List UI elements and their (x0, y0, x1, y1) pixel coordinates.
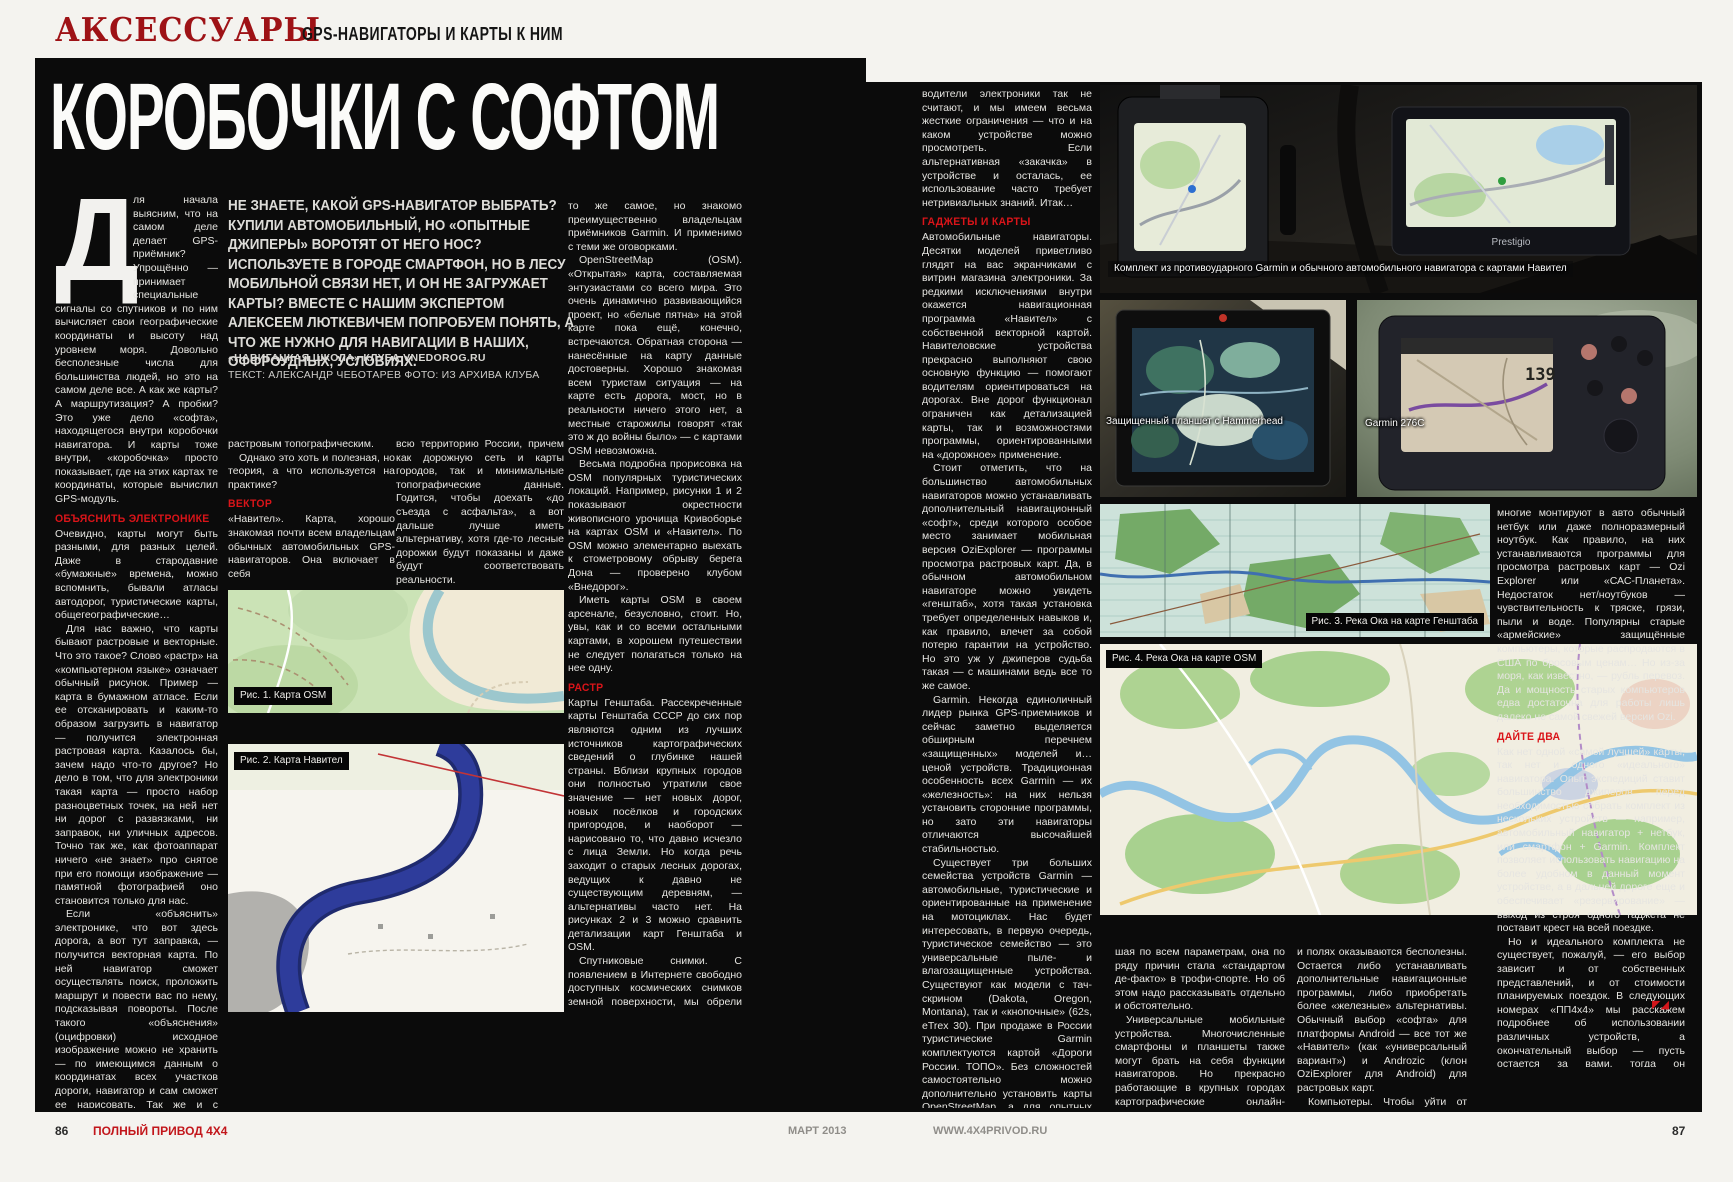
column-7-paragraphs: и полях оказываются бесполезны. Остается… (1297, 946, 1467, 1108)
figure-2-navitel-map: Рис. 2. Карта Навител (228, 744, 564, 1012)
figure-4-caption: Рис. 4. Река Ока на карте OSM (1106, 650, 1262, 668)
text-column-3: всю территорию России, причем как дорожн… (396, 438, 564, 588)
article-paragraph: и полях оказываются бесполезны. Остается… (1297, 946, 1467, 1096)
photo-garmin-276c: 139 Garmin 276C (1357, 300, 1697, 497)
column-4-paragraphs: то же самое, но знакомо преимущественно … (568, 200, 742, 1012)
footer-brand: ПОЛНЫЙ ПРИВОД 4Х4 (93, 1124, 227, 1138)
garmin-photo-graphic: 139 (1357, 300, 1697, 497)
figure-3-caption: Рис. 3. Река Ока на карте Генштаба (1306, 613, 1484, 631)
text-column-7: и полях оказываются бесполезны. Остается… (1297, 946, 1467, 1108)
article-paragraph: всю территорию России, причем как дорожн… (396, 438, 564, 588)
section-kicker: АКСЕССУАРЫ (55, 10, 321, 49)
figure-2-caption: Рис. 2. Карта Навител (234, 752, 349, 770)
section-heading: ВЕКТОР (228, 498, 387, 511)
byline-credits: ТЕКСТ: АЛЕКСАНДР ЧЕБОТАРЕВ ФОТО: ИЗ АРХИ… (228, 369, 539, 381)
article-paragraph: Карты Генштаба. Рассекреченные карты Ген… (568, 697, 742, 955)
article-paragraph: Если «объяснить» электронике, что вот зд… (55, 908, 218, 1108)
photo-garmin-caption: Garmin 276C (1365, 418, 1424, 430)
magazine-spread: АКСЕССУАРЫ GPS-НАВИГАТОРЫ И КАРТЫ К НИМ … (0, 0, 1733, 1182)
column-2-paragraphs: растровым топографическим.Однако это хот… (228, 438, 395, 581)
article-paragraph: Для нас важно, что карты бывают растровы… (55, 623, 218, 908)
article-paragraph: Иметь карты OSM в своем арсенале, безусл… (568, 594, 742, 676)
text-column-6: шая по всем параметрам, она по ряду прич… (1115, 946, 1285, 1108)
figure-3-genshtab-map: Рис. 3. Река Ока на карте Генштаба (1100, 504, 1490, 637)
figure-1-osm-map: Рис. 1. Карта OSM (228, 590, 564, 713)
photo-tablet-caption: Защищенный планшет с Hammerhead (1106, 416, 1283, 428)
section-heading: ДАЙТЕ ДВА (1497, 731, 1676, 744)
car-nav-brand-label: Prestigio (1492, 237, 1531, 248)
navitel-map-graphic (228, 744, 564, 1012)
section-heading: ГАДЖЕТЫ И КАРТЫ (922, 216, 1084, 229)
column-1-paragraphs: ля начала выясним, что на самом деле дел… (55, 194, 218, 1108)
article-paragraph: Компьютеры. Чтобы уйти от ограничений др… (1297, 1096, 1467, 1108)
article-headline: КОРОБОЧКИ С СОФТОМ (50, 70, 719, 165)
article-paragraph: Автомобильные навигаторы. Десятки моделе… (922, 231, 1092, 462)
article-paragraph: Универсальные мобильные устройства. Мног… (1115, 1014, 1285, 1108)
article-paragraph: то же самое, но знакомо преимущественно … (568, 200, 742, 254)
article-paragraph: Спутниковые снимки. С появлением в Интер… (568, 955, 742, 1012)
article-paragraph: Garmin. Некогда единоличный лидер рынка … (922, 694, 1092, 857)
text-column-5: водители электроники так не считают, и м… (922, 88, 1092, 1108)
article-paragraph: Однако это хоть и полезная, но теория, а… (228, 452, 395, 493)
article-paragraph: шая по всем параметрам, она по ряду прич… (1115, 946, 1285, 1014)
article-paragraph: Как нет одной «самой лучшей» карты, так … (1497, 746, 1685, 936)
article-paragraph: Стоит отметить, что на большинство автом… (922, 462, 1092, 693)
article-paragraph: растровым топографическим. (228, 438, 395, 452)
article-end-mark: ◤◢ (1652, 998, 1669, 1011)
tablet-photo-graphic (1100, 300, 1346, 497)
text-column-8: многие монтируют в авто обычный нетбук и… (1497, 507, 1685, 1067)
footer-issue-date: МАРТ 2013 (788, 1125, 847, 1137)
page-number-left: 86 (55, 1124, 68, 1138)
section-heading: ОБЪЯСНИТЬ ЭЛЕКТРОНИКЕ (55, 513, 210, 526)
article-paragraph: водители электроники так не считают, и м… (922, 88, 1092, 210)
text-column-2: растровым топографическим.Однако это хот… (228, 438, 395, 588)
article-lead: НЕ ЗНАЕТЕ, КАКОЙ GPS-НАВИГАТОР ВЫБРАТЬ? … (228, 197, 577, 373)
article-paragraph: OpenStreetMap (OSM). «Открытая» карта, с… (568, 254, 742, 458)
garmin-screen-reading: 139 (1525, 365, 1556, 385)
column-5-paragraphs: водители электроники так не считают, и м… (922, 88, 1092, 1108)
byline-school: «НАВИГАЦКАЯ ШКОЛА» КЛУБА VNEDOROG.RU (228, 352, 486, 364)
page-number-right: 87 (1672, 1124, 1685, 1138)
article-paragraph: Очевидно, карты могут быть разными, для … (55, 528, 218, 623)
footer-website: WWW.4X4PRIVOD.RU (933, 1125, 1047, 1137)
section-heading: РАСТР (568, 682, 733, 695)
column-6-paragraphs: шая по всем параметрам, она по ряду прич… (1115, 946, 1285, 1108)
text-column-4: то же самое, но знакомо преимущественно … (568, 200, 742, 1012)
text-column-1: Д ля начала выясним, что на самом деле д… (55, 194, 218, 1108)
section-subtitle: GPS-НАВИГАТОРЫ И КАРТЫ К НИМ (302, 24, 563, 45)
article-paragraph: Весьма подробна прорисовка на OSM популя… (568, 458, 742, 594)
photo-dashboard-navigators: Prestigio Комплект из противоударного Ga… (1100, 85, 1697, 293)
column-3-paragraphs: всю территорию России, причем как дорожн… (396, 438, 564, 588)
drop-cap: Д (55, 194, 127, 290)
photo-rugged-tablet: Защищенный планшет с Hammerhead (1100, 300, 1346, 497)
article-paragraph: «Навител». Карта, хорошо знакомая почти … (228, 513, 395, 581)
article-paragraph: многие монтируют в авто обычный нетбук и… (1497, 507, 1685, 725)
column-8-paragraphs: многие монтируют в авто обычный нетбук и… (1497, 507, 1685, 1067)
figure-1-caption: Рис. 1. Карта OSM (234, 687, 332, 705)
photo-dashboard-caption: Комплект из противоударного Garmin и обы… (1108, 261, 1573, 277)
article-paragraph: Существует три больших семейства устройс… (922, 857, 1092, 1108)
